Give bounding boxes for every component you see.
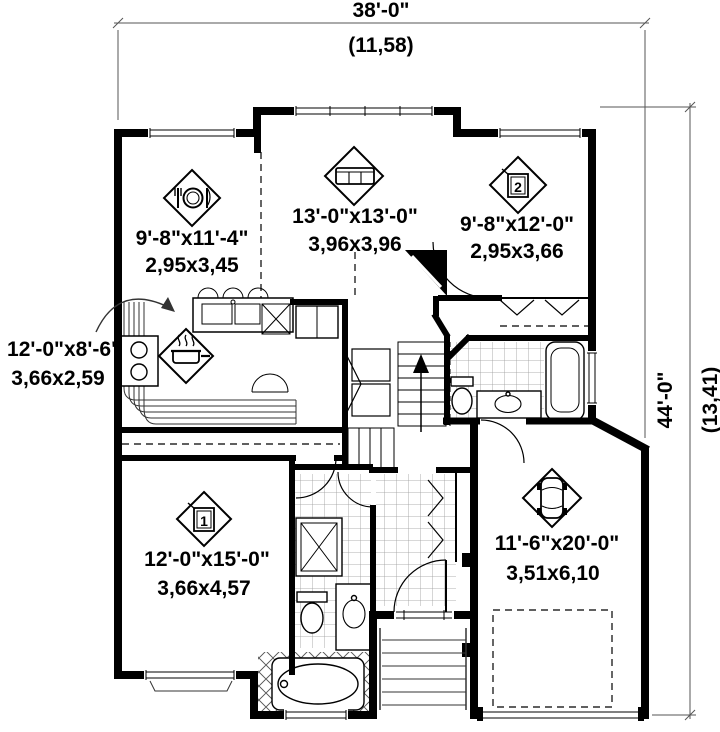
toilet bbox=[301, 603, 323, 633]
bedroom2-window bbox=[498, 127, 582, 139]
dining-window bbox=[148, 127, 236, 139]
floor-plan-drawing: 38'-0" (11,58) 44'-0" (13,41) 2 bbox=[0, 0, 720, 732]
living-dims-metric: 3,96x3,96 bbox=[308, 233, 401, 256]
toilet-tank bbox=[451, 377, 473, 386]
bedroom2-dims-imperial: 9'-8"x12'-0" bbox=[460, 213, 574, 236]
toilet-tank bbox=[297, 592, 327, 602]
dining-dims-imperial: 9'-8"x11'-4" bbox=[136, 227, 249, 250]
stool bbox=[248, 288, 268, 298]
bedroom1-dims-metric: 3,66x4,57 bbox=[157, 577, 250, 600]
dining-dims-metric: 2,95x3,45 bbox=[145, 254, 239, 277]
garage-door bbox=[477, 707, 644, 721]
height-dimension-metric: (13,41) bbox=[699, 367, 720, 434]
garage-service-door-swing bbox=[481, 420, 524, 463]
stove bbox=[121, 336, 158, 386]
living-dims-imperial: 13'-0"x13'-0" bbox=[292, 205, 418, 228]
bed-icon: 1 bbox=[177, 492, 231, 546]
faucet bbox=[352, 596, 357, 601]
bath-bump-window bbox=[284, 709, 348, 721]
up-arrow-icon bbox=[413, 354, 429, 373]
stool bbox=[223, 288, 243, 298]
faucet bbox=[506, 392, 510, 396]
sink bbox=[495, 396, 521, 413]
kitchen-callout-arrow bbox=[96, 297, 175, 332]
sofa-icon bbox=[325, 147, 383, 205]
dryer bbox=[352, 384, 390, 416]
bathroom-side-window bbox=[586, 351, 598, 405]
bedroom2-dims-metric: 2,95x3,66 bbox=[470, 240, 563, 263]
bedroom1-dims-imperial: 12'-0"x15'-0" bbox=[144, 548, 270, 571]
garage-dims-metric: 3,51x6,10 bbox=[506, 562, 599, 585]
stairs bbox=[345, 342, 450, 468]
car-icon bbox=[523, 469, 581, 527]
height-dimension-imperial: 44'-0" bbox=[654, 372, 677, 429]
pantry-doors bbox=[252, 374, 288, 392]
entry-steps bbox=[380, 628, 466, 710]
bedroom2-number: 2 bbox=[514, 179, 522, 195]
bedroom2-closet-bifold bbox=[500, 300, 579, 315]
living-window bbox=[294, 105, 434, 117]
kitchen-island bbox=[193, 298, 293, 332]
dining-icon bbox=[164, 170, 220, 226]
bedroom1-window bbox=[144, 669, 236, 691]
parking-space-outline bbox=[493, 610, 612, 707]
corner-fireplace bbox=[405, 250, 447, 296]
width-dimension-metric: (11,58) bbox=[348, 34, 413, 57]
cooking-icon bbox=[159, 329, 213, 383]
kitchen-dims-imperial: 12'-0"x8'-6" bbox=[7, 338, 121, 361]
kitchen-dims-metric: 3,66x2,59 bbox=[11, 367, 104, 390]
toilet bbox=[452, 388, 472, 414]
width-dimension-imperial: 38'-0" bbox=[353, 0, 410, 22]
sink bbox=[343, 600, 365, 628]
tub-faucet bbox=[281, 681, 288, 688]
stool bbox=[198, 288, 218, 298]
bedroom1-number: 1 bbox=[200, 513, 208, 529]
kitchen-fixtures bbox=[121, 288, 338, 424]
bed-icon: 2 bbox=[490, 157, 546, 213]
floor-plan-page: 38'-0" (11,58) 44'-0" (13,41) 2 bbox=[0, 0, 720, 732]
garage-dims-imperial: 11'-6"x20'-0" bbox=[495, 532, 619, 555]
